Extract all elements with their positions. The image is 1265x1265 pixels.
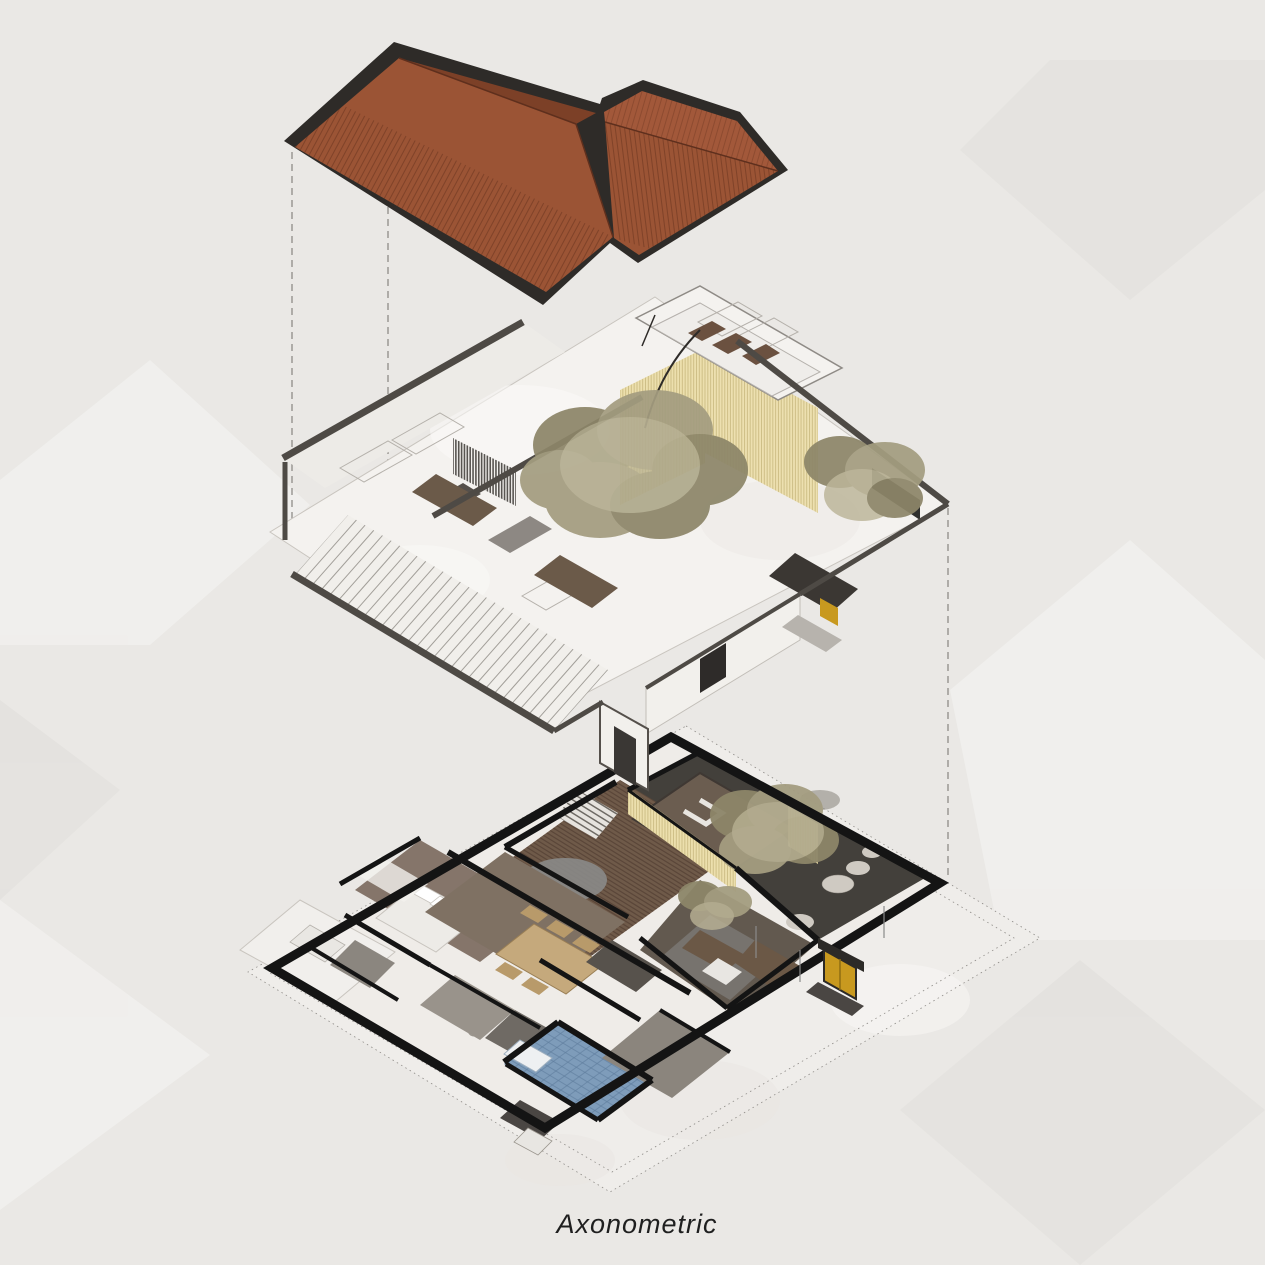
axonometric-drawing: Axonometric (0, 0, 1265, 1265)
axonometric-label: Axonometric (554, 1209, 717, 1239)
drawing-canvas: Axonometric (0, 0, 1265, 1265)
